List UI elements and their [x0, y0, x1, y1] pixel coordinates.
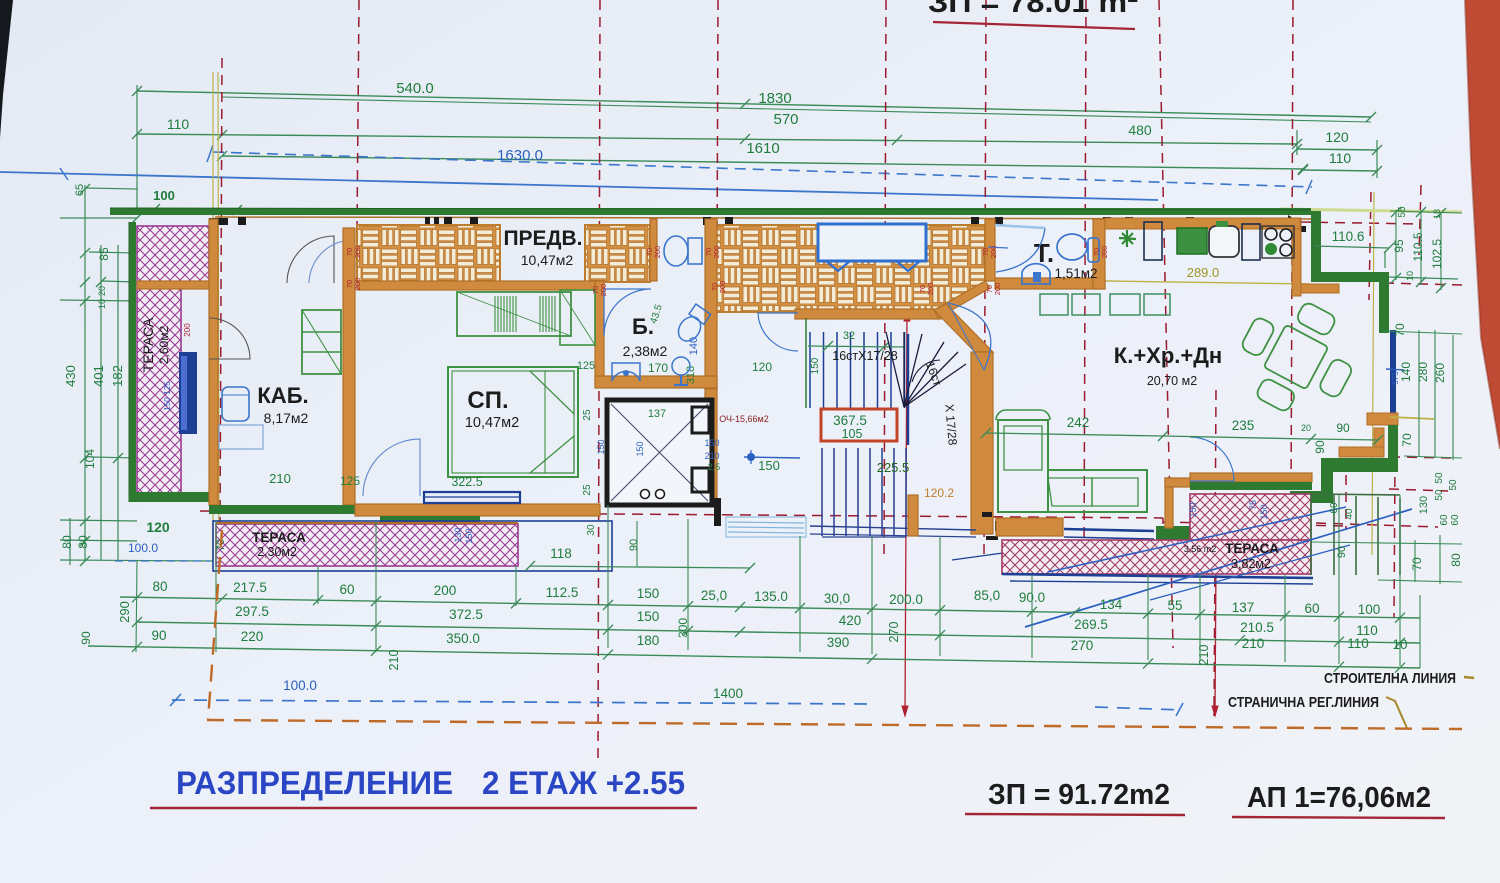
- svg-text:90: 90: [628, 539, 640, 551]
- svg-text:80: 80: [76, 535, 90, 549]
- svg-text:480: 480: [1128, 122, 1152, 138]
- svg-text:242: 242: [1067, 415, 1090, 430]
- svg-text:269.5: 269.5: [1074, 617, 1108, 632]
- svg-text:ТЕРАСА: ТЕРАСА: [140, 317, 156, 372]
- svg-text:210: 210: [1197, 645, 1211, 666]
- svg-text:130: 130: [1418, 496, 1430, 514]
- svg-text:3,82м2: 3,82м2: [1231, 557, 1271, 571]
- svg-text:3,56 m2: 3,56 m2: [1184, 544, 1217, 554]
- svg-text:210.5: 210.5: [1240, 620, 1274, 635]
- svg-text:200: 200: [989, 246, 998, 259]
- svg-text:85: 85: [97, 247, 111, 261]
- svg-text:140: 140: [688, 337, 700, 355]
- svg-text:К.+Хр.+Дн: К.+Хр.+Дн: [1114, 343, 1222, 368]
- svg-text:180: 180: [637, 633, 660, 648]
- svg-text:90: 90: [151, 628, 166, 643]
- svg-text:200: 200: [1100, 246, 1109, 259]
- svg-text:1630.0: 1630.0: [497, 147, 543, 164]
- svg-text:420: 420: [839, 613, 862, 628]
- svg-text:200: 200: [653, 246, 662, 259]
- svg-text:80: 80: [1449, 553, 1463, 567]
- svg-text:110: 110: [1347, 636, 1369, 651]
- svg-text:30: 30: [586, 524, 597, 536]
- svg-text:120: 120: [752, 360, 772, 374]
- svg-text:150: 150: [163, 397, 172, 411]
- svg-text:2,30м2: 2,30м2: [257, 545, 297, 559]
- svg-text:25: 25: [582, 409, 593, 421]
- svg-text:150: 150: [635, 441, 645, 456]
- svg-text:260: 260: [1433, 363, 1447, 383]
- svg-text:КАБ.: КАБ.: [257, 383, 308, 408]
- svg-text:ТЕРАСА: ТЕРАСА: [1225, 541, 1279, 556]
- svg-text:90: 90: [79, 631, 93, 645]
- svg-text:125: 125: [163, 381, 172, 395]
- svg-text:150: 150: [704, 438, 719, 448]
- svg-text:110: 110: [1329, 150, 1352, 166]
- svg-text:290: 290: [117, 601, 132, 623]
- svg-text:200: 200: [434, 583, 457, 598]
- svg-text:225.5: 225.5: [877, 460, 910, 475]
- svg-text:200: 200: [718, 281, 727, 294]
- svg-text:1830: 1830: [758, 90, 791, 107]
- svg-text:289.0: 289.0: [1187, 265, 1220, 280]
- svg-text:40: 40: [1344, 508, 1355, 520]
- svg-text:220: 220: [241, 629, 264, 644]
- svg-text:75: 75: [1248, 500, 1258, 510]
- svg-text:ЗП = 91.72m2: ЗП = 91.72m2: [988, 779, 1170, 811]
- svg-text:ТЕРАСА: ТЕРАСА: [252, 530, 306, 545]
- svg-text:10,47м2: 10,47м2: [521, 252, 574, 268]
- svg-text:200: 200: [183, 323, 192, 337]
- svg-text:8,17м2: 8,17м2: [264, 410, 309, 426]
- svg-text:2 ЕТАЖ +2.55: 2 ЕТАЖ +2.55: [482, 765, 685, 801]
- svg-text:2,60м2: 2,60м2: [157, 326, 171, 365]
- svg-text:430: 430: [63, 365, 78, 387]
- svg-text:200: 200: [353, 278, 362, 291]
- svg-text:50: 50: [1434, 489, 1445, 501]
- svg-text:110.5: 110.5: [1411, 232, 1425, 261]
- svg-text:130: 130: [453, 527, 463, 542]
- svg-text:322.5: 322.5: [451, 475, 482, 489]
- svg-text:90: 90: [1336, 546, 1348, 558]
- svg-text:25: 25: [582, 484, 593, 496]
- svg-text:60: 60: [1439, 514, 1450, 526]
- svg-text:АП 1=76,06м2: АП 1=76,06м2: [1247, 782, 1431, 814]
- svg-text:20,70 м2: 20,70 м2: [1147, 374, 1197, 388]
- svg-text:125: 125: [577, 360, 595, 372]
- svg-text:112.5: 112.5: [546, 585, 579, 600]
- svg-text:10: 10: [1405, 271, 1415, 281]
- svg-text:60: 60: [1450, 514, 1461, 526]
- svg-text:150: 150: [758, 458, 780, 473]
- svg-text:20: 20: [97, 286, 107, 296]
- svg-text:150: 150: [1259, 504, 1269, 519]
- svg-text:10,47м2: 10,47м2: [465, 415, 519, 431]
- svg-text:1400: 1400: [713, 686, 743, 701]
- svg-text:104: 104: [83, 449, 97, 469]
- svg-text:297.5: 297.5: [235, 604, 269, 619]
- svg-text:100.0: 100.0: [128, 541, 158, 555]
- svg-text:137: 137: [1232, 600, 1255, 615]
- svg-text:200: 200: [353, 246, 362, 259]
- svg-text:150: 150: [596, 439, 606, 454]
- svg-text:80: 80: [152, 579, 167, 594]
- svg-text:100.0: 100.0: [283, 678, 317, 693]
- svg-text:70: 70: [1393, 323, 1407, 337]
- svg-text:150: 150: [464, 528, 474, 543]
- svg-text:540.0: 540.0: [396, 80, 434, 97]
- svg-text:270: 270: [1071, 638, 1094, 653]
- svg-text:10: 10: [97, 299, 107, 309]
- svg-text:70: 70: [1410, 557, 1424, 571]
- svg-text:210: 210: [704, 451, 719, 461]
- svg-text:20: 20: [1301, 423, 1311, 433]
- svg-text:ЗП = 78.01 m²: ЗП = 78.01 m²: [928, 0, 1138, 19]
- svg-text:РАЗПРЕДЕЛЕНИЕ: РАЗПРЕДЕЛЕНИЕ: [176, 765, 453, 801]
- svg-text:2,38м2: 2,38м2: [623, 343, 668, 359]
- svg-text:200: 200: [712, 246, 721, 259]
- svg-text:120: 120: [146, 519, 170, 535]
- svg-text:150: 150: [1188, 502, 1198, 517]
- svg-text:200.0: 200.0: [889, 592, 923, 607]
- svg-text:65: 65: [74, 184, 86, 196]
- svg-text:372.5: 372.5: [449, 607, 483, 622]
- svg-text:120: 120: [1325, 129, 1349, 145]
- svg-text:16стX17/28: 16стX17/28: [832, 349, 898, 363]
- svg-text:30,0: 30,0: [824, 591, 850, 606]
- svg-text:350.0: 350.0: [446, 631, 480, 646]
- svg-text:367.5: 367.5: [833, 413, 867, 428]
- svg-text:210: 210: [387, 650, 401, 671]
- svg-text:150: 150: [637, 586, 660, 601]
- svg-text:100: 100: [153, 188, 175, 203]
- svg-text:100: 100: [1358, 602, 1381, 617]
- svg-text:102.5: 102.5: [1430, 239, 1444, 269]
- svg-text:120.2: 120.2: [924, 486, 954, 500]
- svg-text:200: 200: [926, 283, 935, 296]
- svg-text:280: 280: [1416, 362, 1430, 382]
- svg-text:2,5: 2,5: [708, 462, 721, 472]
- svg-text:1610: 1610: [746, 140, 779, 157]
- svg-text:200: 200: [993, 283, 1002, 296]
- svg-text:210: 210: [269, 471, 291, 486]
- svg-text:182: 182: [110, 365, 125, 387]
- svg-text:60: 60: [1329, 502, 1340, 514]
- svg-text:СТРАНИЧНА РЕГ.ЛИНИЯ: СТРАНИЧНА РЕГ.ЛИНИЯ: [1228, 694, 1379, 711]
- svg-text:170: 170: [648, 361, 668, 375]
- svg-text:134: 134: [1100, 597, 1123, 612]
- svg-text:210: 210: [1242, 636, 1265, 651]
- svg-text:50: 50: [1448, 479, 1459, 491]
- svg-text:570: 570: [773, 111, 798, 128]
- svg-text:318: 318: [685, 366, 697, 384]
- svg-text:118: 118: [550, 546, 572, 561]
- svg-text:125: 125: [340, 474, 360, 488]
- svg-text:390: 390: [827, 635, 850, 650]
- svg-text:55: 55: [1167, 598, 1182, 613]
- svg-text:235: 235: [1232, 418, 1255, 433]
- svg-text:СП.: СП.: [467, 387, 508, 414]
- svg-text:270: 270: [887, 622, 901, 643]
- svg-text:25,0: 25,0: [701, 588, 727, 603]
- svg-text:60: 60: [1304, 601, 1319, 616]
- svg-text:217.5: 217.5: [233, 580, 267, 595]
- svg-text:110: 110: [167, 116, 190, 132]
- svg-text:110.6: 110.6: [1332, 229, 1365, 244]
- svg-text:150: 150: [810, 357, 821, 374]
- svg-text:85,0: 85,0: [974, 588, 1000, 603]
- svg-text:140: 140: [1399, 362, 1413, 382]
- svg-text:95: 95: [1392, 239, 1406, 253]
- svg-text:135.0: 135.0: [754, 589, 788, 604]
- svg-text:60: 60: [339, 582, 354, 597]
- svg-text:1,51м2: 1,51м2: [1054, 266, 1097, 281]
- svg-text:55: 55: [1397, 206, 1408, 218]
- svg-text:150: 150: [637, 609, 660, 624]
- svg-text:50: 50: [1434, 472, 1445, 484]
- svg-text:ОЧ-15,66м2: ОЧ-15,66м2: [719, 414, 769, 424]
- svg-text:СТРОИТЕЛНА ЛИНИЯ: СТРОИТЕЛНА ЛИНИЯ: [1324, 670, 1456, 687]
- svg-text:90: 90: [1313, 440, 1327, 454]
- svg-text:90: 90: [1336, 421, 1350, 435]
- svg-text:70: 70: [1400, 433, 1414, 447]
- svg-text:80: 80: [60, 535, 74, 549]
- svg-text:18: 18: [1432, 209, 1442, 219]
- svg-text:401: 401: [91, 365, 106, 387]
- svg-text:105: 105: [842, 427, 863, 441]
- svg-text:ПРЕДВ.: ПРЕДВ.: [503, 227, 582, 250]
- svg-text:32: 32: [843, 330, 855, 342]
- svg-text:137: 137: [648, 408, 666, 420]
- svg-text:200: 200: [599, 284, 608, 297]
